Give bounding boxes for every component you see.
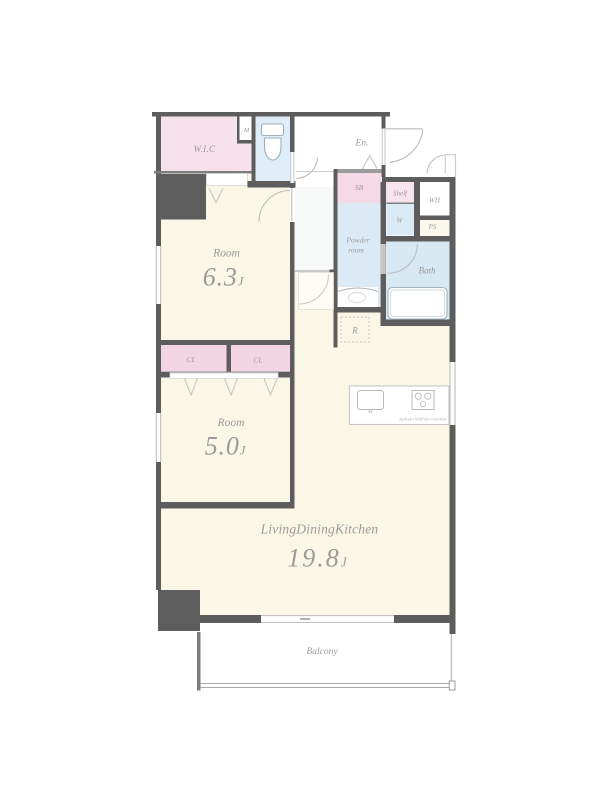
svg-text:W.I.C: W.I.C (194, 144, 216, 154)
svg-text:SB: SB (355, 183, 364, 192)
svg-text:W: W (396, 216, 403, 225)
svg-text:Room: Room (212, 248, 240, 260)
svg-text:Balcony: Balcony (306, 647, 338, 657)
svg-text:M: M (243, 127, 250, 134)
svg-text:R: R (351, 326, 358, 336)
svg-text:Bath: Bath (419, 266, 436, 276)
svg-text:room: room (348, 246, 364, 255)
svg-text:PS: PS (428, 223, 437, 231)
svg-text:Room: Room (217, 417, 245, 429)
svg-text:LivingDiningKitchen: LivingDiningKitchen (260, 522, 379, 537)
svg-text:19.8J: 19.8J (287, 544, 349, 573)
svg-text:WH: WH (429, 197, 441, 205)
svg-text:Shelf: Shelf (393, 190, 408, 198)
svg-text:CL: CL (186, 355, 195, 364)
svg-text:CL: CL (253, 356, 262, 365)
svg-text:En.: En. (355, 139, 369, 149)
svg-text:system kitchen counter: system kitchen counter (399, 417, 447, 422)
svg-text:Powder: Powder (345, 236, 369, 245)
